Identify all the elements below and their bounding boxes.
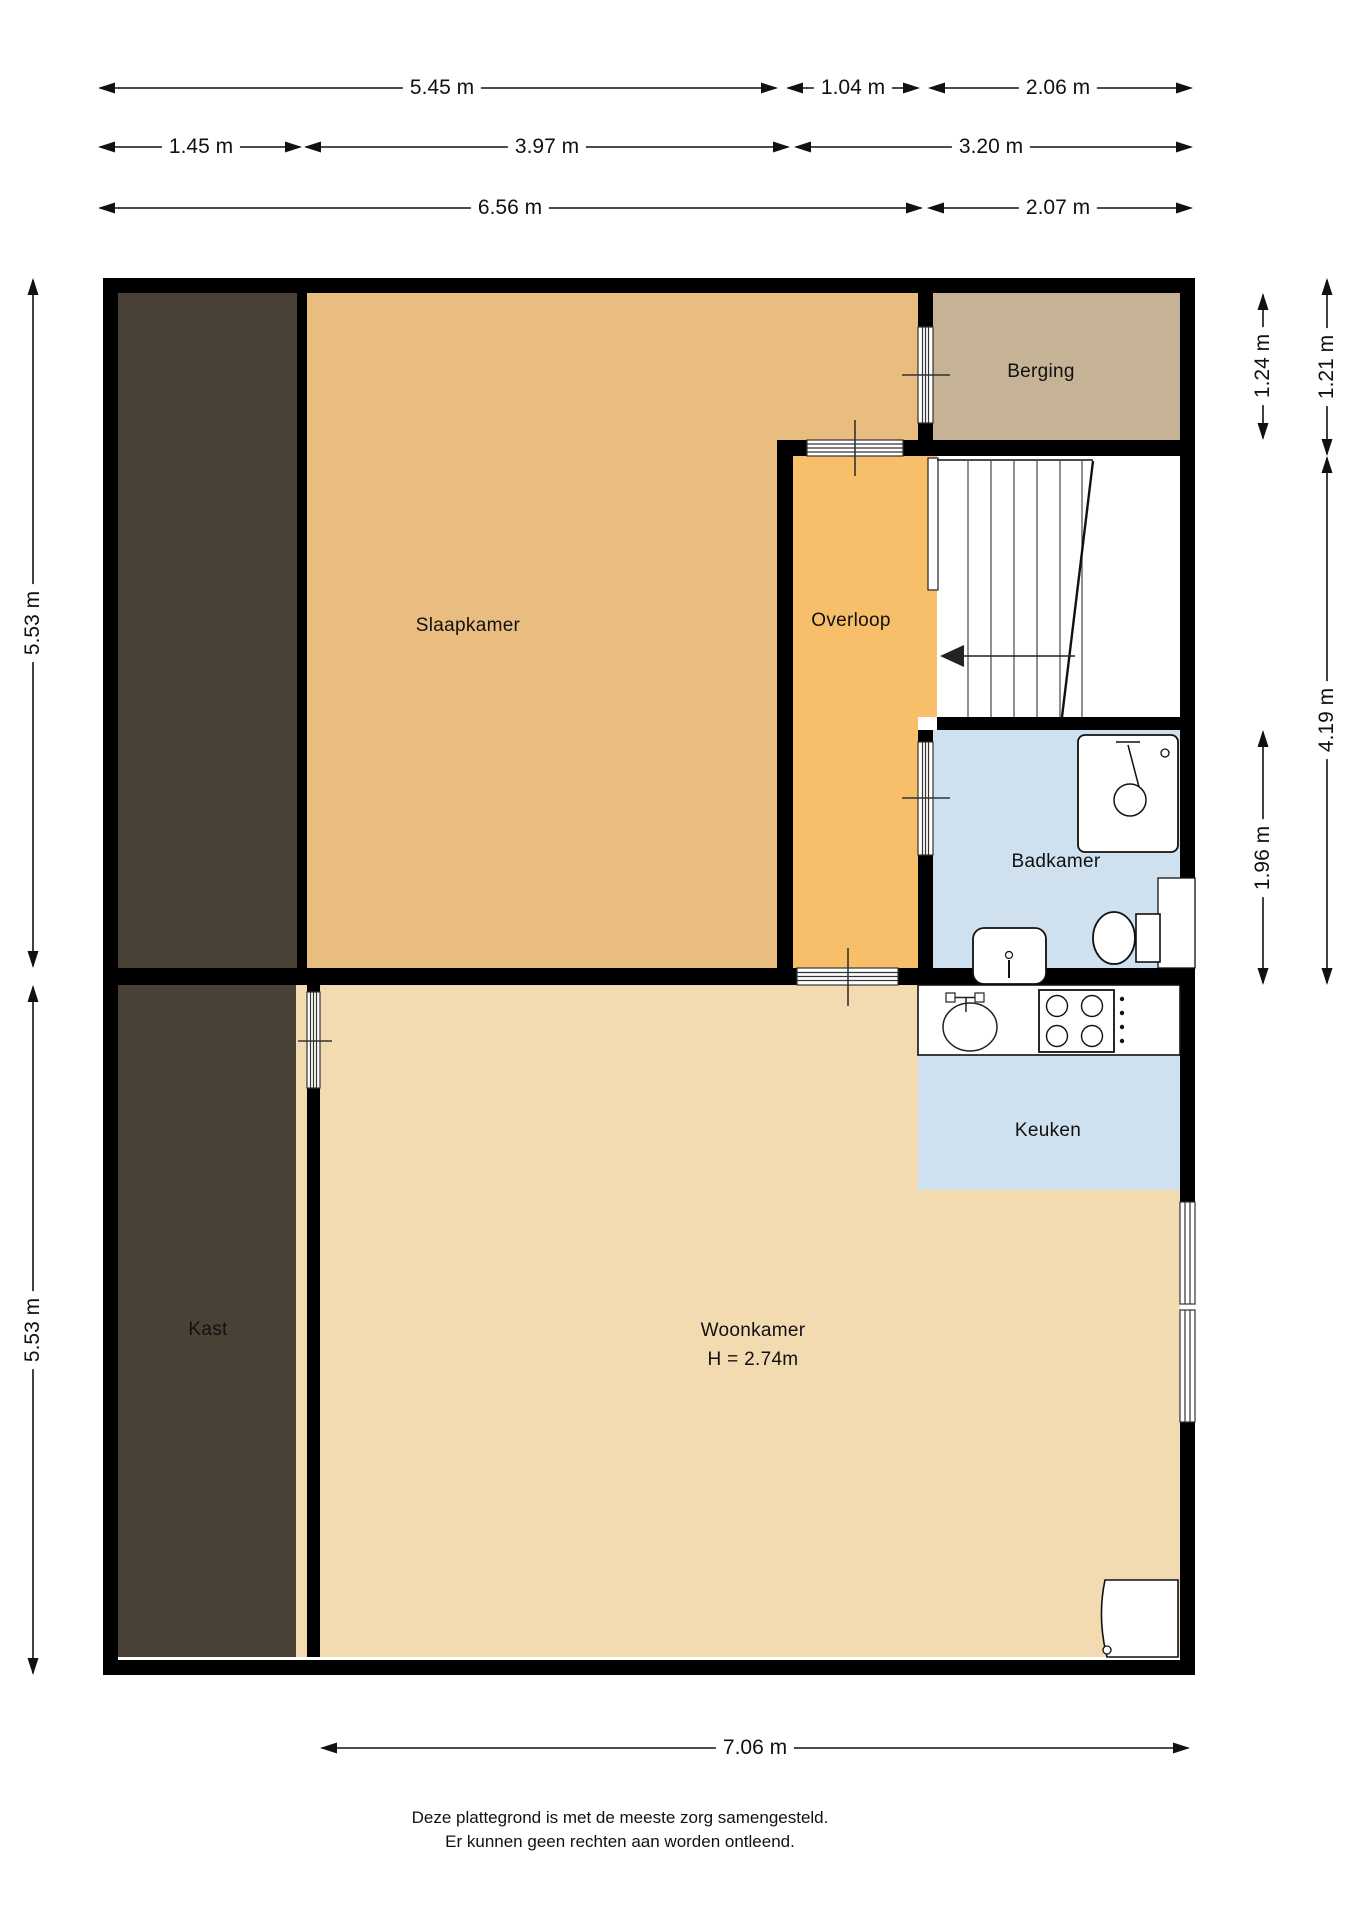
dim-label-145: 1.45 m xyxy=(162,135,240,159)
room-label-badkamer: Badkamer xyxy=(1012,851,1101,873)
slaapkamer-fill xyxy=(307,440,777,968)
wall-badkamer-left-a xyxy=(918,730,933,742)
stairwell-edge xyxy=(928,458,938,590)
wall-mid-left xyxy=(103,968,797,985)
dim-label-706: 7.06 m xyxy=(716,1736,794,1760)
room-label-keuken: Keuken xyxy=(1015,1120,1081,1142)
footer-disclaimer-line2: Er kunnen geen rechten aan worden ontlee… xyxy=(445,1832,795,1852)
wall-berging-bottom xyxy=(903,440,1195,456)
wall-top xyxy=(103,278,1195,293)
overloop-fill-upper xyxy=(793,456,937,717)
duct-niche xyxy=(1158,878,1195,968)
stairs xyxy=(928,458,1093,717)
overloop-fill xyxy=(793,717,918,968)
hob-icon xyxy=(1039,990,1124,1052)
stair-treads xyxy=(968,460,1082,717)
wall-kast-divider-b xyxy=(307,1088,320,1657)
dim-label-320: 3.20 m xyxy=(952,135,1030,159)
room-label-woonkamer: Woonkamer xyxy=(701,1320,806,1342)
wall-berging-left-b xyxy=(918,423,933,456)
wall-badkamer-top xyxy=(937,717,1180,730)
wall-bottom xyxy=(103,1660,1195,1675)
dim-label-104: 1.04 m xyxy=(814,76,892,100)
floorplan-page: 5.45 m 1.04 m 2.06 m 1.45 m 3.97 m 3.20 … xyxy=(0,0,1358,1920)
wall-closet-divider-top xyxy=(297,293,307,968)
door-hinge-icon xyxy=(1103,1646,1111,1654)
room-label-overloop: Overloop xyxy=(811,610,891,632)
dim-label-553-top: 5.53 m xyxy=(21,584,45,662)
room-label-woonkamer-height: H = 2.74m xyxy=(708,1349,799,1371)
washbasin-icon xyxy=(973,928,1046,984)
footer-disclaimer-line1: Deze plattegrond is met de meeste zorg s… xyxy=(412,1808,829,1828)
dim-label-124: 1.24 m xyxy=(1251,327,1275,405)
dim-label-196: 1.96 m xyxy=(1251,819,1275,897)
floorplan-drawing xyxy=(0,0,1358,1920)
wall-berging-left-a xyxy=(918,293,933,327)
room-label-kast: Kast xyxy=(188,1319,227,1341)
wall-overloop-left xyxy=(777,440,793,968)
stairs-direction-arrow-icon xyxy=(940,645,964,667)
wall-right-upper xyxy=(1180,278,1195,1202)
kitchen-fixtures xyxy=(918,985,1180,1055)
window-woonkamer-right xyxy=(1180,1202,1195,1422)
wall-badkamer-left-b xyxy=(918,855,933,968)
closet-top-fill xyxy=(118,293,299,968)
dim-label-419: 4.19 m xyxy=(1315,681,1339,759)
dim-label-207: 2.07 m xyxy=(1019,196,1097,220)
woonkamer-fill xyxy=(320,985,918,1657)
shower-icon xyxy=(1078,735,1178,852)
door-swing xyxy=(1101,1580,1178,1657)
kast-gap-fill xyxy=(296,985,307,1657)
room-label-slaapkamer: Slaapkamer xyxy=(416,615,520,637)
stairs-break-line xyxy=(1062,461,1093,717)
room-label-berging: Berging xyxy=(1007,361,1075,383)
dim-label-545: 5.45 m xyxy=(403,76,481,100)
wall-right-lower xyxy=(1180,1422,1195,1675)
dim-label-121: 1.21 m xyxy=(1315,328,1339,406)
wall-kast-divider-a xyxy=(307,985,320,992)
slaapkamer-fill-upper xyxy=(307,293,918,440)
dim-label-397: 3.97 m xyxy=(508,135,586,159)
dim-label-206: 2.06 m xyxy=(1019,76,1097,100)
dim-label-656: 6.56 m xyxy=(471,196,549,220)
entry-door xyxy=(1101,1580,1178,1657)
dim-label-553-bottom: 5.53 m xyxy=(21,1291,45,1369)
toilet-icon xyxy=(1093,912,1160,964)
